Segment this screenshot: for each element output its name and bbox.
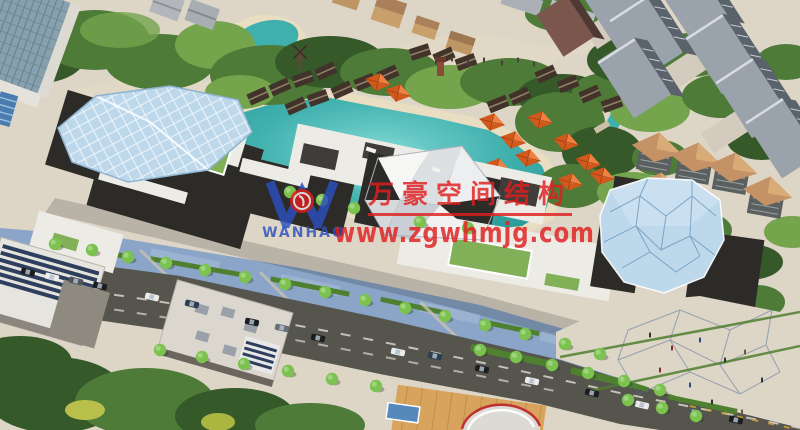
right-glass-canopy — [600, 178, 724, 293]
watermark-website-url: www.zgwhmjg.com — [334, 216, 595, 249]
rendering-canvas: WANHAO 万豪空间结构 www.zgwhmjg.com — [0, 0, 800, 430]
wanhao-logo-icon — [266, 178, 338, 228]
watermark-company-name: 万豪空间结构 — [368, 181, 572, 216]
